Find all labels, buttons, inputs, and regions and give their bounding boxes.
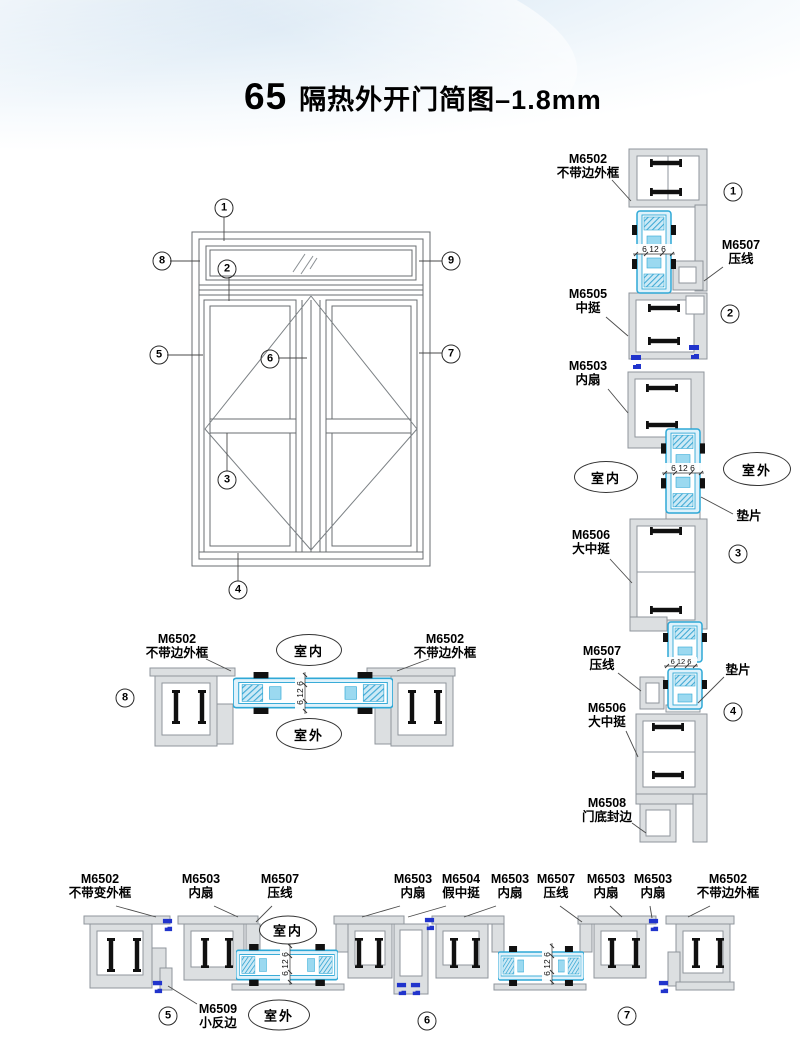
part-label-b8: M6503 内扇 <box>634 872 672 900</box>
callout-text: 1 <box>730 186 736 198</box>
clip-icon <box>659 981 668 993</box>
callout-3: 3 <box>218 471 237 490</box>
part-code: M6508 <box>582 796 632 810</box>
dim-glass-2: 6 12 6 <box>662 463 704 475</box>
part-name: 不带边外框 <box>557 166 620 180</box>
glass-unit <box>663 622 707 662</box>
part-label-m6506-big-mullion: M6506 大中挺 <box>572 528 610 556</box>
dim-glass-3: 6 12 6 <box>664 657 698 668</box>
callout-5-text: 5 <box>156 349 162 361</box>
part-label-b2: M6507 压线 <box>261 872 299 900</box>
part-code: M6507 <box>722 238 760 252</box>
callout-2-text: 2 <box>224 263 230 275</box>
glass-dim-text: 6 12 6 <box>642 244 666 254</box>
part-label-b7: M6503 内扇 <box>587 872 625 900</box>
indoor-text: 室内 <box>294 641 324 660</box>
callout-7-text: 7 <box>448 348 454 360</box>
part-code: M6502 <box>414 632 477 646</box>
part-code: M6506 <box>572 528 610 542</box>
callout-text: 4 <box>730 706 736 718</box>
part-label-m6505-transom: M6505 中挺 <box>569 287 607 315</box>
elevation-drawing <box>192 232 430 566</box>
callout-text: 2 <box>727 308 733 320</box>
part-code: M6502 <box>69 872 132 886</box>
callout-1-text: 1 <box>221 202 227 214</box>
part-code: M6506 <box>588 701 626 715</box>
outdoor-text: 室外 <box>742 460 772 479</box>
part-name: 不带边外框 <box>697 886 760 900</box>
callout-section-5: 5 <box>159 1007 178 1026</box>
callout-section-6: 6 <box>418 1012 437 1031</box>
part-name: 不带边外框 <box>146 646 209 660</box>
callout-6-text: 6 <box>267 353 273 365</box>
part-name: 中挺 <box>569 301 607 315</box>
part-name: 不带边外框 <box>414 646 477 660</box>
part-code: M6507 <box>261 872 299 886</box>
callout-text: 8 <box>122 692 128 704</box>
part-name: 内扇 <box>634 886 672 900</box>
part-code: M6504 <box>442 872 480 886</box>
callout-8-text: 8 <box>159 255 165 267</box>
part-name: 大中挺 <box>572 542 610 556</box>
part-name: 内扇 <box>182 886 220 900</box>
part-label-m6506-big-mullion-2: M6506 大中挺 <box>588 701 626 729</box>
part-name: 内扇 <box>491 886 529 900</box>
part-label-b4: M6504 假中挺 <box>442 872 480 900</box>
callout-text: 6 <box>424 1015 430 1027</box>
callout-section-2: 2 <box>721 305 740 324</box>
indoor-badge-s8: 室内 <box>276 634 342 666</box>
indoor-badge-bottom: 室内 <box>259 916 317 945</box>
part-label-m6508-bottom-seal: M6508 门底封边 <box>582 796 632 824</box>
elevation-leaders <box>167 217 442 581</box>
part-name: 内扇 <box>587 886 625 900</box>
callout-section-8: 8 <box>116 689 135 708</box>
part-code: M6503 <box>587 872 625 886</box>
part-label-b0: M6502 不带变外框 <box>69 872 132 900</box>
gasket-label-1: 垫片 <box>736 509 761 523</box>
callout-2: 2 <box>218 260 237 279</box>
part-code: M6502 <box>146 632 209 646</box>
callout-6: 6 <box>261 350 280 369</box>
callout-9: 9 <box>442 252 461 271</box>
part-label-s8-left-frame: M6502 不带边外框 <box>146 632 209 660</box>
part-code: M6503 <box>569 359 607 373</box>
gasket-label-2: 垫片 <box>725 663 750 677</box>
outdoor-badge-bottom: 室外 <box>248 1000 310 1031</box>
glass-unit <box>233 672 393 714</box>
part-code: M6507 <box>583 644 621 658</box>
part-name: 压线 <box>583 658 621 672</box>
callout-4-text: 4 <box>235 584 241 596</box>
dim-glass-s8: 6 12 6 <box>295 672 307 714</box>
diagram-linework: 6 12 6 6 12 6 6 12 6 <box>0 0 800 1062</box>
outdoor-badge-s8: 室外 <box>276 718 342 750</box>
dim-glass-b2: 6 12 6 <box>542 943 554 985</box>
dim-glass-b1: 6 12 6 <box>280 943 292 985</box>
callout-5: 5 <box>150 346 169 365</box>
outdoor-badge-vertical: 室外 <box>723 452 791 486</box>
part-label-m6503-sash: M6503 内扇 <box>569 359 607 387</box>
callout-text: 7 <box>624 1010 630 1022</box>
callout-text: 3 <box>735 548 741 560</box>
glass-unit <box>663 669 707 709</box>
glass-dim-text: 6 12 6 <box>295 681 305 705</box>
part-label-b3: M6503 内扇 <box>394 872 432 900</box>
callout-1: 1 <box>215 199 234 218</box>
glass-marks-icon <box>293 254 317 274</box>
part-code: M6503 <box>394 872 432 886</box>
callout-7: 7 <box>442 345 461 364</box>
outdoor-text: 室外 <box>264 1006 294 1025</box>
part-label-m6509-flip-edge: M6509 小反边 <box>199 1002 237 1030</box>
clip-icon <box>163 919 172 931</box>
part-name: 内扇 <box>394 886 432 900</box>
part-label-b5: M6503 内扇 <box>491 872 529 900</box>
part-name: 压线 <box>537 886 575 900</box>
callout-8: 8 <box>153 252 172 271</box>
part-label-m6507-bead-right: M6507 压线 <box>722 238 760 266</box>
part-label-b9: M6502 不带边外框 <box>697 872 760 900</box>
part-label-b1: M6503 内扇 <box>182 872 220 900</box>
part-label-s8-right-frame: M6502 不带边外框 <box>414 632 477 660</box>
part-name: 压线 <box>722 252 760 266</box>
clip-icon <box>631 355 641 369</box>
glass-dim-text: 6 12 6 <box>280 952 290 976</box>
part-code: M6505 <box>569 287 607 301</box>
glass-unit <box>498 946 584 986</box>
callout-4: 4 <box>229 581 248 600</box>
part-label-m6507-bead-left: M6507 压线 <box>583 644 621 672</box>
part-name: 门底封边 <box>582 810 632 824</box>
part-name: 小反边 <box>199 1016 237 1030</box>
callout-text: 5 <box>165 1010 171 1022</box>
part-label-m6502-frame-top: M6502 不带边外框 <box>557 152 620 180</box>
part-name: 假中挺 <box>442 886 480 900</box>
clip-icon <box>649 919 658 931</box>
part-code: M6503 <box>182 872 220 886</box>
outdoor-text: 室外 <box>294 725 324 744</box>
gasket-text: 垫片 <box>736 509 761 523</box>
part-name: 不带变外框 <box>69 886 132 900</box>
glass-dim-text: 6 12 6 <box>671 463 695 473</box>
part-code: M6503 <box>634 872 672 886</box>
part-name: 内扇 <box>569 373 607 387</box>
indoor-text: 室内 <box>273 921 303 940</box>
part-code: M6507 <box>537 872 575 886</box>
callout-section-7: 7 <box>618 1007 637 1026</box>
part-name: 压线 <box>261 886 299 900</box>
callout-section-1: 1 <box>724 183 743 202</box>
catalog-page: { "header": { "doc_number": "65", "title… <box>0 0 800 1062</box>
callout-section-3: 3 <box>729 545 748 564</box>
callout-9-text: 9 <box>448 255 454 267</box>
indoor-badge-vertical: 室内 <box>574 461 638 493</box>
part-name: 大中挺 <box>588 715 626 729</box>
part-code: M6502 <box>557 152 620 166</box>
dim-glass-1: 6 12 6 <box>633 244 675 256</box>
gasket-text: 垫片 <box>725 663 750 677</box>
part-code: M6509 <box>199 1002 237 1016</box>
part-label-b6: M6507 压线 <box>537 872 575 900</box>
part-code: M6502 <box>697 872 760 886</box>
glass-dim-text: 6 12 6 <box>671 657 692 666</box>
glass-dim-text: 6 12 6 <box>542 952 552 976</box>
callout-3-text: 3 <box>224 474 230 486</box>
indoor-text: 室内 <box>591 468 621 487</box>
callout-section-4: 4 <box>724 703 743 722</box>
part-code: M6503 <box>491 872 529 886</box>
